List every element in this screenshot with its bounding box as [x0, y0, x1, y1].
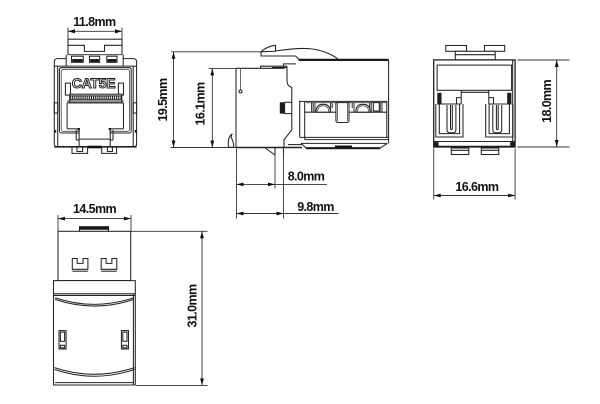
svg-text:8.0mm: 8.0mm: [288, 170, 325, 184]
svg-text:16.6mm: 16.6mm: [455, 180, 498, 194]
svg-text:16.1mm: 16.1mm: [194, 82, 208, 125]
svg-text:14.5mm: 14.5mm: [73, 202, 116, 216]
svg-text:9.8mm: 9.8mm: [297, 200, 334, 214]
svg-text:18.0mm: 18.0mm: [540, 79, 554, 122]
svg-text:11.8mm: 11.8mm: [73, 15, 116, 29]
svg-text:19.5mm: 19.5mm: [156, 78, 170, 121]
svg-text:31.0mm: 31.0mm: [186, 284, 200, 327]
svg-text:CAT5E: CAT5E: [72, 75, 115, 91]
